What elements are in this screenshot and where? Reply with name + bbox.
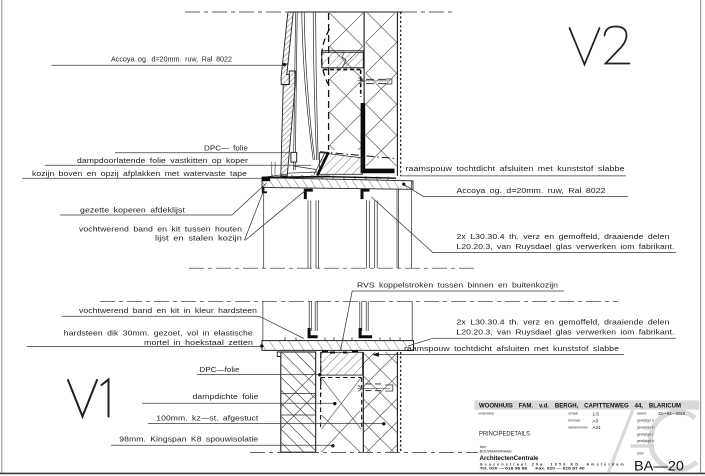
svg-text:1:5: 1:5 <box>593 411 600 416</box>
svg-text:vochtwerend band en kit in kle: vochtwerend band en kit in kleur hardste… <box>79 306 257 315</box>
svg-text:brief: brief <box>637 451 644 455</box>
svg-text:formaat: formaat <box>568 419 580 423</box>
svg-text:2x L30.30.4 th. verz en gemoff: 2x L30.30.4 th. verz en gemoffeld, draai… <box>457 232 670 241</box>
svg-text:22—04—2010: 22—04—2010 <box>658 411 685 416</box>
svg-text:hardsteen dik 30mm. gezoet, vo: hardsteen dik 30mm. gezoet, vol in elast… <box>64 329 253 338</box>
svg-text:A21: A21 <box>593 425 602 430</box>
svg-text:gezette koperen afdeklijst: gezette koperen afdeklijst <box>80 206 185 215</box>
svg-text:2x L30.30.4 th. verz en gemoff: 2x L30.30.4 th. verz en gemoffeld, draai… <box>457 318 670 327</box>
svg-text:Tel. 020 — 618 96 68 Fax.: Tel. 020 — 618 96 68 Fax. 020 — 616 87 4… <box>480 467 585 471</box>
svg-text:gewijzigd c: gewijzigd c <box>637 432 654 436</box>
svg-text:gewijzigd b: gewijzigd b <box>637 426 654 430</box>
svg-text:98mm. Kingspan K8 spouwisolati: 98mm. Kingspan K8 spouwisolatie <box>119 434 258 443</box>
svg-text:PRINCIPEDETAILS: PRINCIPEDETAILS <box>479 430 531 437</box>
svg-text:onderwerp: onderwerp <box>478 412 494 416</box>
svg-text:100mm. kz—st. afgestuct: 100mm. kz—st. afgestuct <box>156 413 258 422</box>
svg-text:kozijn boven en opzij afplakke: kozijn boven en opzij afplakken met wate… <box>32 169 247 178</box>
svg-text:fase: fase <box>480 445 487 449</box>
svg-text:ArchitectenCentrale: ArchitectenCentrale <box>480 455 539 462</box>
svg-text:vochtwerend band en kit tussen: vochtwerend band en kit tussen houten <box>79 225 242 234</box>
svg-text:mortel in hoekstaal zetten: mortel in hoekstaal zetten <box>144 338 253 347</box>
svg-text:A3: A3 <box>593 418 599 423</box>
svg-text:Accoya og. d=20mm. ruw, Ral 80: Accoya og. d=20mm. ruw, Ral 8022 <box>457 186 606 195</box>
svg-text:dampdoorlatende folie vastkitt: dampdoorlatende folie vastkitten op kope… <box>77 156 249 165</box>
svg-text:L20.20.3, van Ruysdael glas ve: L20.20.3, van Ruysdael glas verwerken io… <box>457 242 675 251</box>
svg-text:Accoya og. d=20mm. ruw, Ral 80: Accoya og. d=20mm. ruw, Ral 8022 <box>111 55 232 64</box>
svg-text:WOONHUIS FAM. v.d. BERGH, CAPI: WOONHUIS FAM. v.d. BERGH, CAPITTENWEG 44… <box>479 403 681 410</box>
svg-text:raamspouw tochtdicht afsluiten: raamspouw tochtdicht afsluiten met kunst… <box>406 164 625 173</box>
svg-text:BA—20: BA—20 <box>634 458 684 474</box>
svg-text:RVS koppelstroken tussen binne: RVS koppelstroken tussen binnen en buite… <box>357 281 558 290</box>
svg-text:BOUWAANVRAAG: BOUWAANVRAAG <box>480 450 512 454</box>
svg-text:L20.20.3, van Ruysdael glas ve: L20.20.3, van Ruysdael glas verwerken io… <box>457 328 675 337</box>
svg-text:werknummer: werknummer <box>568 425 588 429</box>
svg-text:DPC— folie: DPC— folie <box>204 144 248 153</box>
svg-text:schaal: schaal <box>568 412 578 416</box>
svg-text:raamspouw tochtdicht afsluiten: raamspouw tochtdicht afsluiten met kunst… <box>404 344 619 353</box>
svg-text:datum: datum <box>637 412 647 416</box>
svg-text:DPC—folie: DPC—folie <box>200 365 240 374</box>
svg-text:gewijzigd d: gewijzigd d <box>637 439 654 443</box>
svg-text:gewijzigd a: gewijzigd a <box>637 419 654 423</box>
svg-text:lijst en stalen kozijn: lijst en stalen kozijn <box>155 234 242 243</box>
svg-text:dampdichte folie: dampdichte folie <box>193 392 259 401</box>
